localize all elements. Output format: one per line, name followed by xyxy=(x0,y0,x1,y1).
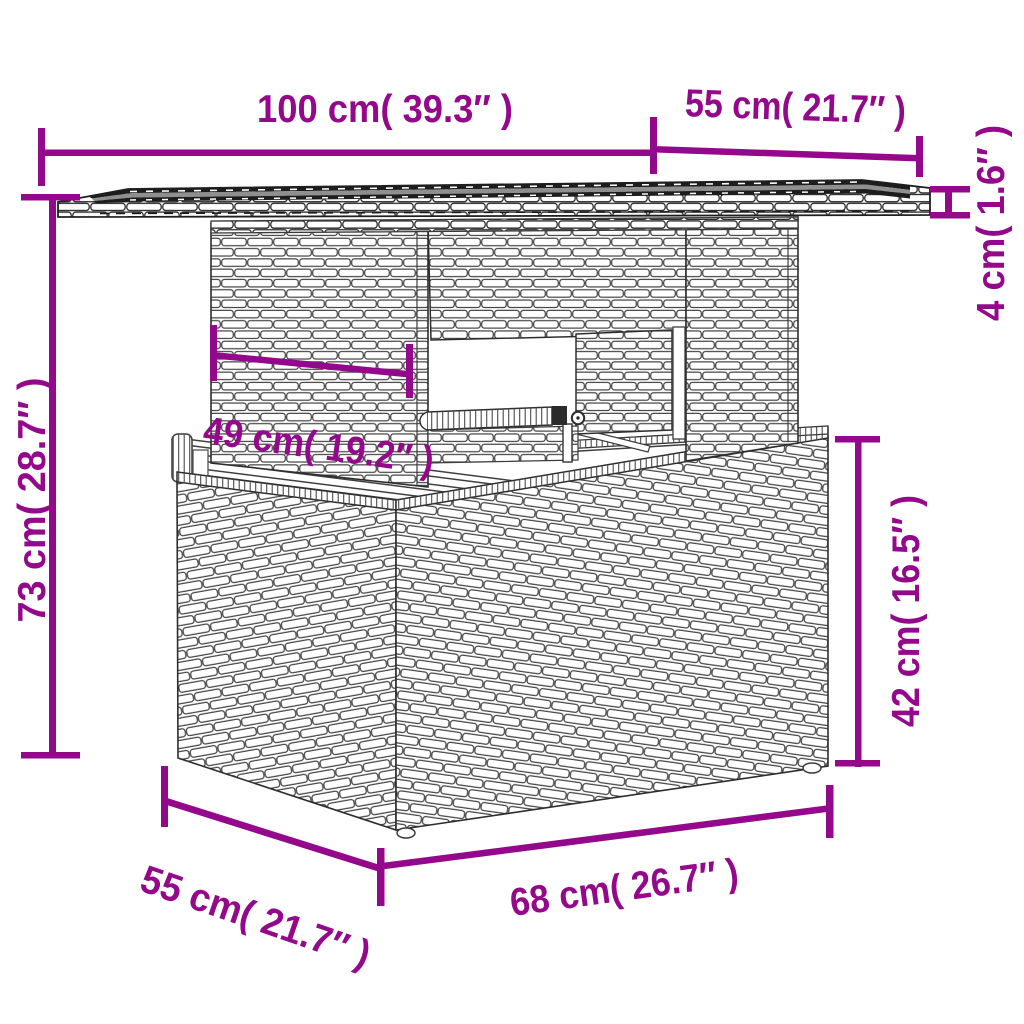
svg-text:4 cm( 1.6″ ): 4 cm( 1.6″ ) xyxy=(970,125,1013,321)
svg-text:73 cm( 28.7″ ): 73 cm( 28.7″ ) xyxy=(11,378,54,623)
svg-text:42 cm( 16.5″ ): 42 cm( 16.5″ ) xyxy=(885,495,928,727)
svg-text:100 cm( 39.3″ ): 100 cm( 39.3″ ) xyxy=(257,88,513,131)
svg-text:55 cm( 21.7″ ): 55 cm( 21.7″ ) xyxy=(684,82,906,133)
